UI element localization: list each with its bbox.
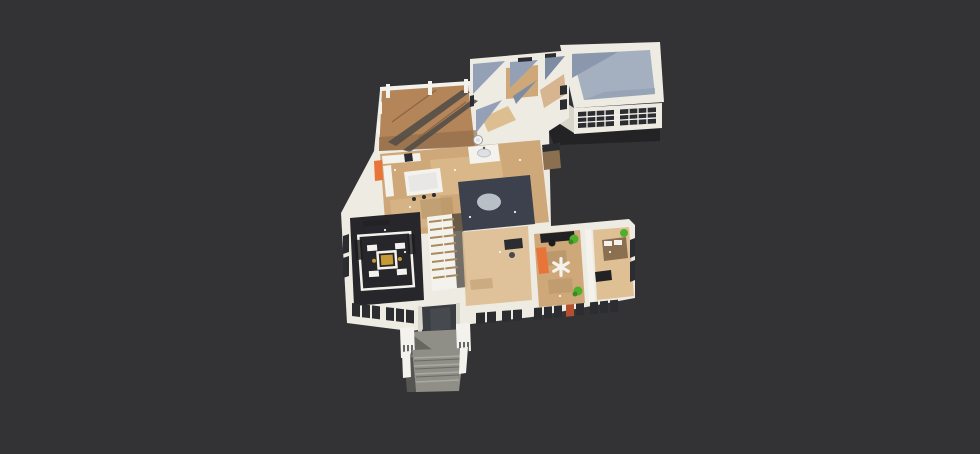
downlight: [444, 241, 446, 243]
study-floor: [462, 226, 532, 306]
steps-side-wall: [402, 351, 411, 378]
stool: [412, 197, 416, 201]
pergola-post: [377, 122, 380, 134]
media-room: [343, 212, 424, 306]
fan-hub: [559, 265, 563, 269]
downlight: [394, 169, 396, 171]
window-pane: [476, 312, 485, 324]
downlight: [384, 229, 386, 231]
pergola-post: [386, 84, 390, 98]
dining-table: [477, 194, 501, 211]
stool: [422, 195, 426, 199]
front-door: [430, 307, 451, 331]
downlight: [609, 251, 611, 253]
sectional-seat: [395, 243, 405, 250]
downlight: [454, 169, 456, 171]
window-pane: [386, 307, 394, 321]
study-hall: [462, 226, 532, 306]
window-pane: [502, 310, 511, 322]
potted-plant: [573, 292, 578, 297]
window-slot: [560, 99, 567, 110]
downlight: [404, 251, 406, 253]
floorplan-viewport[interactable]: [0, 0, 980, 454]
entry-steps: [412, 348, 464, 392]
window-pane: [600, 301, 608, 314]
garage: [560, 42, 664, 134]
window-slot: [343, 234, 349, 254]
window-pane: [554, 305, 562, 318]
downlight: [514, 211, 516, 213]
window-pane: [544, 306, 552, 319]
pillow: [604, 241, 612, 246]
window-pane: [610, 300, 618, 313]
desk: [504, 238, 523, 250]
bedroom2-floor: [593, 227, 634, 300]
potted-plant: [620, 229, 628, 237]
downlight: [469, 216, 471, 218]
side-rug: [407, 234, 415, 254]
orange-accent-panel: [374, 160, 383, 181]
window-pane: [487, 311, 496, 323]
dresser: [595, 270, 612, 282]
downlight: [559, 295, 561, 297]
pergola-post: [464, 79, 468, 93]
side-rug: [355, 240, 363, 260]
pillow: [614, 240, 622, 245]
window-slot: [560, 85, 567, 95]
round-stool: [549, 240, 556, 247]
window-pane-lit: [566, 304, 574, 317]
window-pane: [590, 302, 598, 315]
coffee-table: [381, 254, 394, 265]
kitchen-range: [404, 153, 413, 162]
window-pane: [372, 305, 380, 319]
floor-mottle: [548, 278, 573, 294]
downlight: [519, 159, 521, 161]
window-pane: [534, 307, 542, 320]
window-pane: [396, 308, 404, 322]
window-pane: [513, 309, 522, 321]
sectional-seat: [367, 245, 377, 252]
potted-plant: [569, 240, 574, 245]
downlight: [499, 251, 501, 253]
stool: [432, 193, 436, 197]
window-slot: [470, 95, 474, 107]
window-slot: [630, 260, 635, 282]
pergola-post: [428, 81, 432, 95]
staircase: [427, 213, 467, 291]
sectional-seat: [369, 270, 379, 277]
window-pane: [362, 304, 370, 318]
window-pane: [352, 303, 360, 317]
vanity-sink: [478, 149, 491, 157]
downlight: [409, 206, 411, 208]
floorplan-render: [0, 0, 980, 454]
desk-chair: [509, 252, 515, 258]
window-slot: [630, 238, 635, 258]
washer-door: [476, 138, 480, 142]
sectional-seat: [397, 269, 407, 276]
window-pane: [576, 303, 584, 316]
pergola-post: [379, 102, 382, 114]
floor-mottle: [470, 278, 493, 290]
deck: [377, 79, 478, 152]
window-pane: [406, 309, 414, 323]
window-slot: [343, 256, 349, 278]
faucet: [483, 147, 485, 149]
door-post: [418, 306, 422, 333]
